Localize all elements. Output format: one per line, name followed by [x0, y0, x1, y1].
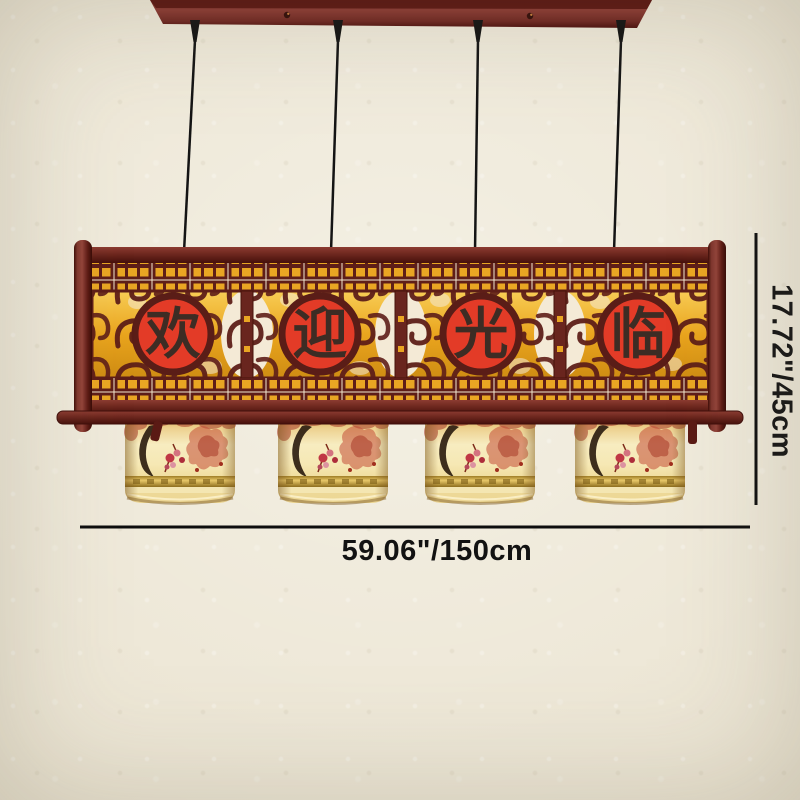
panel-divider: [395, 291, 407, 378]
height-dimension-label: 17.72"/45cm: [765, 284, 798, 458]
lamp-shade: [277, 417, 389, 504]
panel-medallion: 临: [600, 296, 676, 372]
panel-medallion: 迎: [282, 296, 358, 372]
suspension-cables: [184, 20, 626, 252]
panel-divider: [241, 291, 253, 378]
ceiling-canopy: [150, 0, 652, 28]
panel-top-lattice: [92, 263, 708, 291]
panel-divider: [554, 291, 566, 378]
width-dimension-label: 59.06"/150cm: [277, 535, 597, 568]
ledge-support: [688, 421, 697, 444]
lamp-shade: [424, 417, 536, 504]
lamp-shade: [124, 417, 236, 504]
suspension-cable: [184, 40, 195, 252]
canopy-screw-glint: [287, 13, 289, 15]
lamp-shade: [574, 417, 686, 504]
panel-medallion: 光: [443, 296, 519, 372]
canopy-screw-glint: [530, 14, 532, 16]
lamp-shades: [124, 417, 686, 504]
suspension-cable: [475, 40, 478, 252]
medallion-character: 迎: [292, 302, 347, 366]
panel-bottom-lattice: [92, 378, 708, 400]
suspension-cable: [331, 40, 338, 252]
medallion-character: 临: [610, 302, 665, 366]
canopy-screw: [284, 12, 290, 18]
medallion-character: 光: [453, 302, 508, 366]
carved-panel: 欢 迎 光 临: [74, 240, 726, 432]
canopy-screw: [527, 13, 533, 19]
medallion-character: 欢: [144, 302, 200, 366]
panel-right-post: [708, 240, 726, 432]
product-photo: 欢 迎 光 临: [0, 0, 800, 800]
panel-medallion: 欢: [135, 296, 211, 372]
suspension-cable: [614, 40, 621, 252]
lamp-illustration: 欢 迎 光 临: [0, 0, 800, 800]
panel-top-rail: [88, 247, 712, 263]
panel-left-post: [74, 240, 92, 432]
